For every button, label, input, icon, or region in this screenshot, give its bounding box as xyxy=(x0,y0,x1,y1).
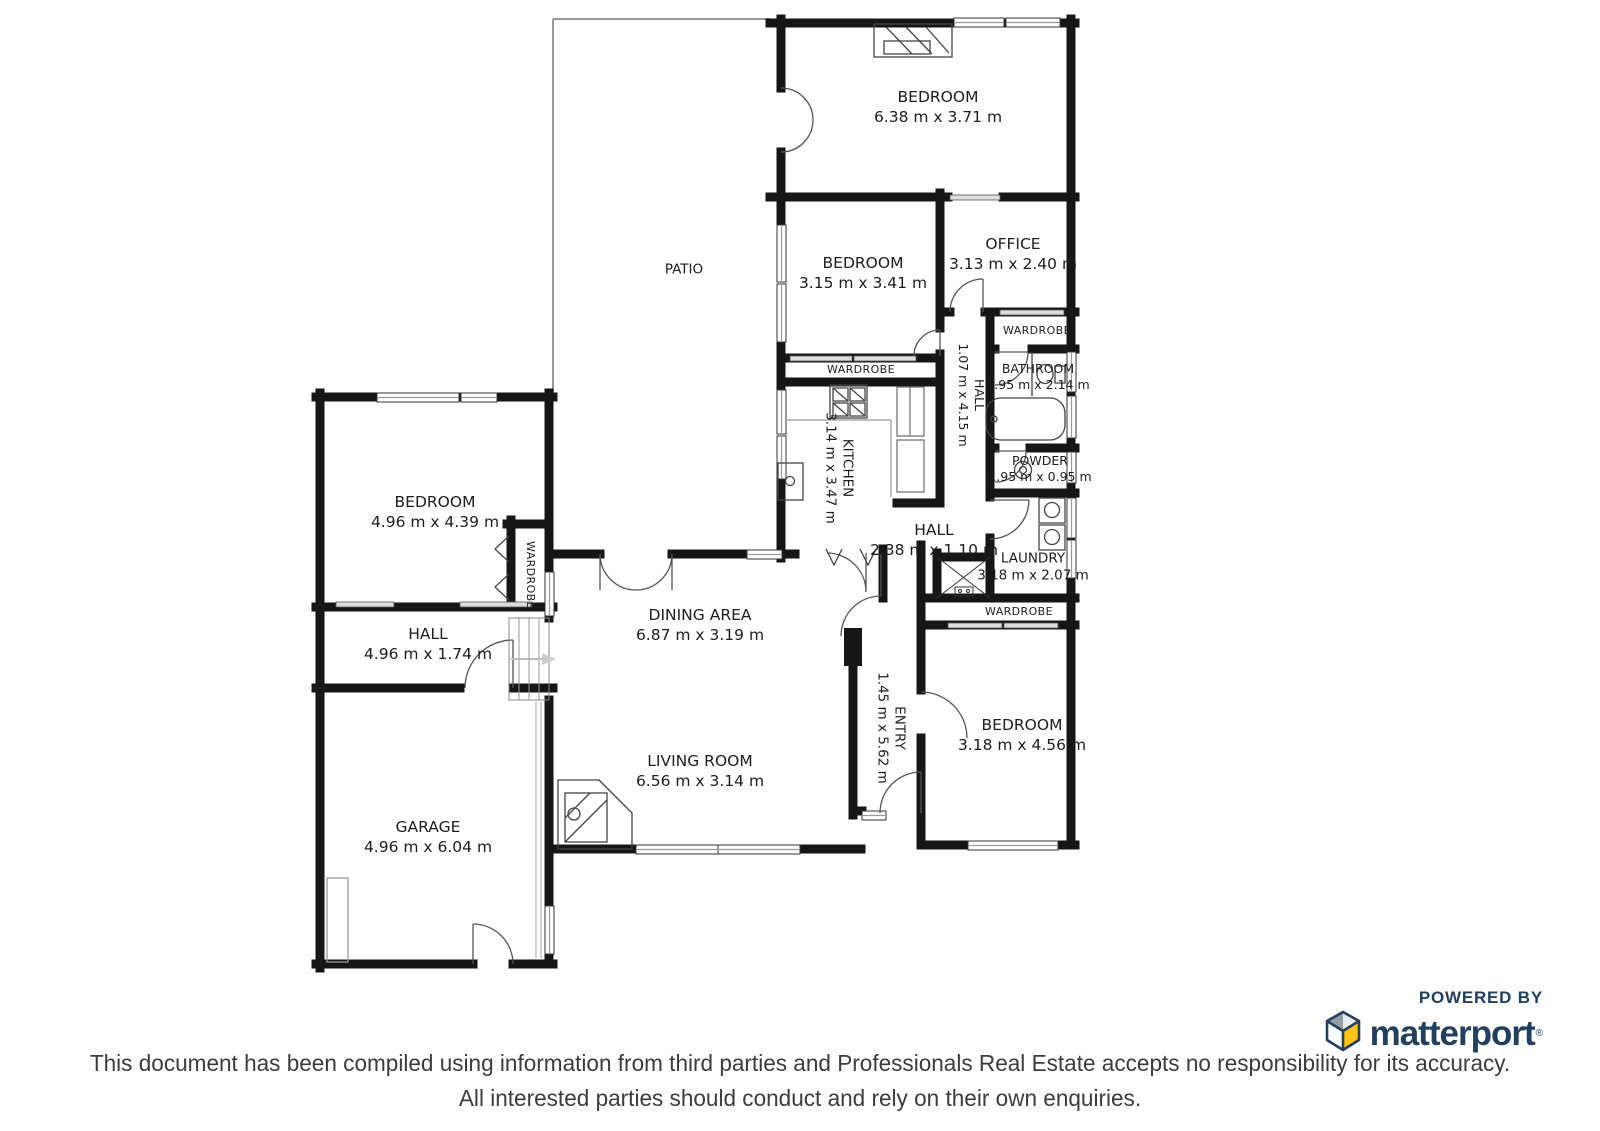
room-label-hall-upper: HALL1.07 m x 4.15 m xyxy=(955,343,987,446)
room-label-bedroom-left: BEDROOM4.96 m x 4.39 m xyxy=(371,493,499,533)
pantry-fridge xyxy=(897,387,924,492)
patio-outline xyxy=(553,19,770,396)
powered-by-text: POWERED BY xyxy=(1324,988,1543,1008)
room-label-dining-area: DINING AREA6.87 m x 3.19 m xyxy=(636,606,764,646)
room-label-wardrobe-tr: WARDROBE xyxy=(1003,324,1071,338)
skylight-icon xyxy=(874,24,952,57)
room-label-wardrobe-mid: WARDROBE xyxy=(827,363,895,377)
bench-stools xyxy=(826,549,876,565)
disclaimer: This document has been compiled using in… xyxy=(32,1046,1568,1116)
room-label-wardrobe-br: WARDROBE xyxy=(985,605,1053,619)
room-label-bedroom-top: BEDROOM6.38 m x 3.71 m xyxy=(874,88,1002,128)
floorplan-page: BEDROOM6.38 m x 3.71 m PATIO BEDROOM3.15… xyxy=(0,0,1600,1131)
room-label-bedroom-br: BEDROOM3.18 m x 4.56 m xyxy=(958,716,1086,756)
registered-trademark: ® xyxy=(1536,1027,1543,1041)
room-label-patio: PATIO xyxy=(665,261,703,278)
room-label-garage: GARAGE4.96 m x 6.04 m xyxy=(364,818,492,858)
floorplan-canvas xyxy=(0,0,1600,1131)
washer-icons xyxy=(1039,498,1065,550)
disclaimer-line-1: This document has been compiled using in… xyxy=(32,1046,1568,1081)
room-label-laundry: LAUNDRY3.18 m x 2.07 m xyxy=(977,551,1089,586)
windows xyxy=(377,18,1076,954)
disclaimer-line-2: All interested parties should conduct an… xyxy=(32,1081,1568,1116)
bathtub-icon xyxy=(986,398,1065,440)
room-label-bathroom: BATHROOM1.95 m x 2.14 m xyxy=(986,361,1089,393)
room-label-powder: POWDER1.95 m x 0.95 m xyxy=(988,453,1091,485)
room-label-hall-left: HALL4.96 m x 1.74 m xyxy=(364,625,492,665)
room-label-entry: ENTRY1.45 m x 5.62 m xyxy=(873,672,908,784)
fireplace-icon xyxy=(558,780,632,849)
room-label-wardrobe-left: WARDROBE xyxy=(523,541,537,609)
room-label-bedroom-2: BEDROOM3.15 m x 3.41 m xyxy=(799,254,927,294)
room-label-office: OFFICE3.13 m x 2.40 m xyxy=(949,235,1077,275)
room-label-living-room: LIVING ROOM6.56 m x 3.14 m xyxy=(636,752,764,792)
room-label-kitchen: KITCHEN3.14 m x 3.47 m xyxy=(821,412,856,524)
